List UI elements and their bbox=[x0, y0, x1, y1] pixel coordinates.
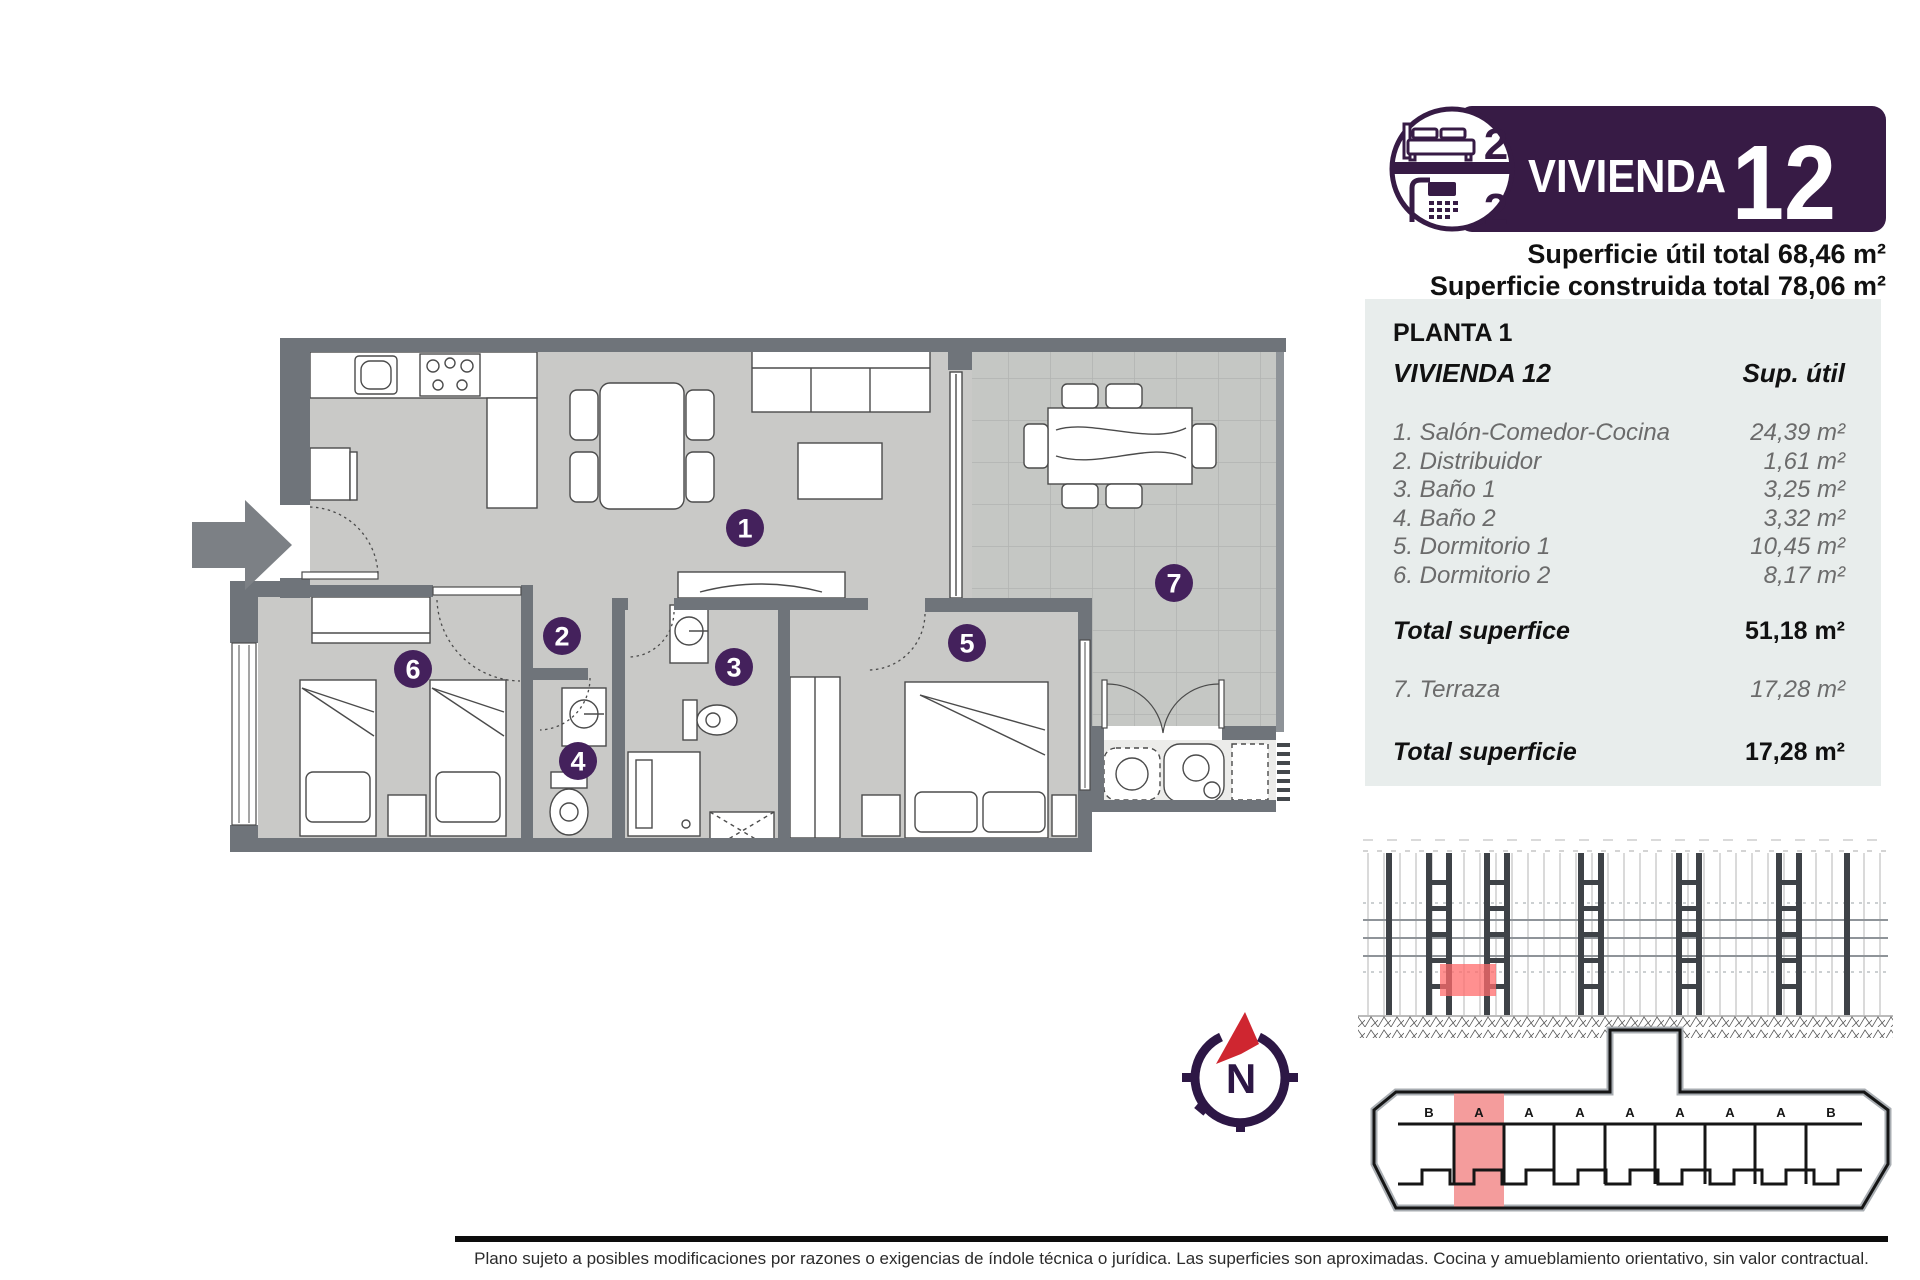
room-badge-5: 5 bbox=[948, 624, 986, 662]
drain-grate bbox=[1277, 743, 1290, 801]
terrace-chair bbox=[1192, 424, 1216, 468]
site-plan: B A A A A A A A B bbox=[1350, 1015, 1900, 1220]
svg-text:A: A bbox=[1524, 1105, 1534, 1120]
table-row: 4. Baño 23,32 m² bbox=[1393, 505, 1845, 534]
vivienda-banner: 2 2 VIVIENDA 12 bbox=[1385, 92, 1900, 242]
tv-console bbox=[678, 572, 845, 598]
entry-arrow-icon bbox=[192, 500, 292, 590]
north-compass: N bbox=[1172, 1002, 1308, 1142]
terrace-swing-door-leaf bbox=[1219, 680, 1224, 728]
total-terraza-row: Total superficie 17,28 m² bbox=[1393, 738, 1845, 767]
terraza-row: 7. Terraza 17,28 m² bbox=[1393, 676, 1845, 704]
terrace-chair bbox=[1024, 424, 1048, 468]
disclaimer-text: Plano sujeto a posibles modificaciones p… bbox=[455, 1249, 1888, 1269]
room-rows: 1. Salón-Comedor-Cocina24,39 m² 2. Distr… bbox=[1393, 419, 1845, 590]
table-row: 5. Dormitorio 110,45 m² bbox=[1393, 533, 1845, 562]
table-row: 1. Salón-Comedor-Cocina24,39 m² bbox=[1393, 419, 1845, 448]
pillow bbox=[915, 792, 977, 832]
table-row: 6. Dormitorio 28,17 m² bbox=[1393, 562, 1845, 591]
surface-totals: Superficie útil total 68,46 m² Superfici… bbox=[1430, 238, 1886, 302]
pillow bbox=[983, 792, 1045, 832]
dining-chair bbox=[570, 452, 598, 502]
vivienda-number: 12 bbox=[1732, 124, 1836, 242]
footer-divider bbox=[455, 1236, 1888, 1242]
svg-text:A: A bbox=[1625, 1105, 1635, 1120]
terrace-chair bbox=[1106, 484, 1142, 508]
surface-construida-total: Superficie construida total 78,06 m² bbox=[1430, 270, 1886, 302]
nightstand bbox=[1052, 795, 1076, 836]
compass-n-label: N bbox=[1226, 1055, 1256, 1102]
floor-label: PLANTA 1 bbox=[1393, 319, 1845, 348]
svg-text:2: 2 bbox=[554, 622, 569, 652]
kitchen-lower-cabinet bbox=[310, 448, 350, 500]
storage-space bbox=[1232, 744, 1268, 800]
room-badge-3: 3 bbox=[715, 648, 753, 686]
svg-text:A: A bbox=[1776, 1105, 1786, 1120]
room-badge-6: 6 bbox=[394, 650, 432, 688]
entry-door-leaf bbox=[302, 572, 378, 579]
vivienda-title: VIVIENDA bbox=[1528, 150, 1726, 202]
svg-text:B: B bbox=[1424, 1105, 1433, 1120]
sofa bbox=[752, 350, 930, 412]
svg-text:A: A bbox=[1725, 1105, 1735, 1120]
room-badge-4: 4 bbox=[559, 742, 597, 780]
room-badge-7: 7 bbox=[1155, 564, 1193, 602]
toilet-tank bbox=[683, 700, 697, 740]
nightstand bbox=[388, 795, 426, 836]
coffee-table bbox=[798, 443, 882, 499]
terrace-chair bbox=[1062, 484, 1098, 508]
plan-sheet: 2 2 VIVIENDA 12 Superficie útil total 68… bbox=[0, 0, 1920, 1280]
kitchen-cabinet-column bbox=[487, 398, 537, 508]
dining-chair bbox=[686, 452, 714, 502]
bedrooms-count: 2 bbox=[1484, 120, 1508, 169]
bathrooms-count: 2 bbox=[1484, 185, 1508, 234]
areas-table: PLANTA 1 VIVIENDA 12 Sup. útil 1. Salón-… bbox=[1365, 299, 1881, 786]
unit-highlight-elevation bbox=[1440, 964, 1496, 996]
svg-text:3: 3 bbox=[726, 653, 741, 683]
wardrobe bbox=[312, 597, 430, 643]
svg-text:7: 7 bbox=[1166, 569, 1181, 599]
nightstand bbox=[862, 795, 900, 836]
room-badge-2: 2 bbox=[543, 617, 581, 655]
surface-util-total: Superficie útil total 68,46 m² bbox=[1430, 238, 1886, 270]
column-header: Sup. útil bbox=[1742, 358, 1845, 389]
door-leaf bbox=[433, 587, 521, 595]
svg-text:1: 1 bbox=[737, 514, 752, 544]
table-row: 3. Baño 13,25 m² bbox=[1393, 476, 1845, 505]
terrace-table bbox=[1048, 408, 1192, 484]
pillow bbox=[436, 772, 500, 822]
dining-chair bbox=[686, 390, 714, 440]
svg-text:A: A bbox=[1675, 1105, 1685, 1120]
svg-text:6: 6 bbox=[405, 655, 420, 685]
terrace-chair bbox=[1106, 384, 1142, 408]
dining-chair bbox=[570, 390, 598, 440]
unit-label: VIVIENDA 12 bbox=[1393, 358, 1551, 389]
window bbox=[232, 643, 256, 825]
dining-table bbox=[600, 383, 684, 509]
floor-plan: 1 2 3 4 5 6 7 bbox=[170, 260, 1320, 870]
terrace-swing-door-leaf bbox=[1102, 680, 1107, 728]
svg-text:5: 5 bbox=[959, 629, 974, 659]
svg-text:B: B bbox=[1826, 1105, 1835, 1120]
table-row: 2. Distribuidor1,61 m² bbox=[1393, 448, 1845, 477]
svg-text:A: A bbox=[1474, 1105, 1484, 1120]
svg-text:A: A bbox=[1575, 1105, 1585, 1120]
pillow bbox=[306, 772, 370, 822]
svg-text:4: 4 bbox=[570, 747, 585, 777]
terrace-chair bbox=[1062, 384, 1098, 408]
room-badge-1: 1 bbox=[726, 509, 764, 547]
total-interior-row: Total superfice 51,18 m² bbox=[1393, 617, 1845, 646]
